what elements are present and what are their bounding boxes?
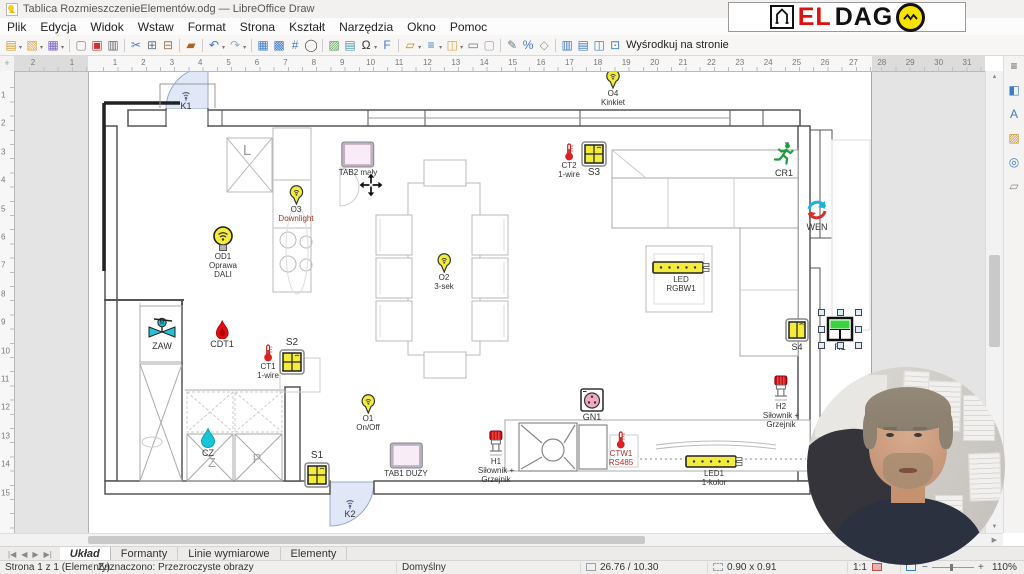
device-label: S3 (588, 167, 600, 178)
dropdown-caret-icon[interactable]: ▾ (460, 44, 463, 51)
device-ct1[interactable]: CT11-wire (257, 344, 279, 380)
zoom-level[interactable]: 110% (992, 561, 1017, 574)
device-label: S4 (791, 342, 802, 352)
ruler-number: 4 (198, 58, 202, 67)
vent-icon (804, 198, 830, 222)
ruler-number: 20 (650, 58, 659, 67)
device-label: GN1 (583, 412, 602, 422)
ruler-number: 9 (1, 318, 5, 327)
led-strip-icon (652, 260, 710, 275)
actuator-icon (486, 430, 506, 457)
device-s2[interactable]: S2 (279, 349, 305, 375)
ruler-number: 8 (1, 289, 5, 298)
person-eye (886, 433, 894, 437)
save-icon[interactable]: ▦ (45, 37, 61, 54)
new-blank-icon[interactable]: ▢ (73, 37, 89, 54)
actuator-icon (771, 375, 791, 402)
eldago-logo: ELDAG (728, 2, 966, 32)
ruler-number: 13 (1, 431, 10, 440)
print-icon[interactable]: ▥ (105, 37, 121, 54)
switch2-icon (785, 318, 809, 342)
ruler-number: 1 (113, 58, 117, 67)
display-grid-icon[interactable]: ▦ (255, 37, 271, 54)
selection-handle[interactable] (855, 309, 862, 316)
device-label: CTW1RS485 (609, 449, 633, 467)
device-h1[interactable]: H1Siłownik +Grzejnik (478, 430, 514, 484)
zoom-slider[interactable] (932, 567, 974, 568)
dropdown-caret-icon[interactable]: ▾ (222, 44, 225, 51)
menu-pomoc[interactable]: Pomoc (443, 19, 494, 35)
device-ct2[interactable]: CT21-wire (558, 143, 580, 179)
menu-okno[interactable]: Okno (400, 19, 443, 35)
ruler-number: 30 (934, 58, 943, 67)
device-label: TAB1 DUŻY (384, 469, 427, 478)
ruler-number: 8 (312, 58, 316, 67)
device-cr1[interactable]: CR1 (773, 142, 795, 178)
ruler-number: 2 (31, 58, 35, 67)
device-od1[interactable]: OD1OprawaDALI (209, 226, 237, 279)
device-move[interactable] (358, 172, 384, 198)
device-tab1[interactable]: TAB1 DUŻY (384, 442, 427, 478)
device-o2[interactable]: O23-sek (434, 253, 454, 291)
thermometer-icon (262, 344, 274, 362)
room-label-p: P (253, 451, 262, 466)
toolbar-separator (322, 39, 323, 52)
tablet-icon (341, 141, 375, 168)
undo-icon[interactable]: ↶ (206, 37, 222, 54)
device-o1[interactable]: O1On/Off (356, 394, 379, 432)
page-style[interactable]: Domyślny (402, 561, 446, 574)
toggle-extrusion-icon[interactable]: ◇ (536, 37, 552, 54)
device-label: CT21-wire (558, 161, 580, 179)
selection-handle[interactable] (818, 342, 825, 349)
running-man-icon (773, 142, 795, 168)
device-label: O3Downlight (278, 205, 313, 223)
switch4-icon (304, 462, 330, 488)
next-layer-button[interactable]: ▶ (30, 550, 40, 559)
align-objects-icon[interactable]: ≡ (423, 37, 439, 54)
device-k2[interactable]: K2 (344, 498, 356, 519)
ruler-number: 14 (480, 58, 489, 67)
logo-text-el: EL (798, 4, 832, 30)
device-zaw[interactable]: MZAW (146, 317, 178, 351)
glue-points-icon[interactable]: % (520, 37, 536, 54)
horizontal-ruler[interactable]: 2112345678910111213141516171819202122232… (14, 56, 985, 72)
toolbar-separator (179, 39, 180, 52)
device-led1[interactable]: LED11-kolor (685, 454, 743, 487)
line-and-filling-icon[interactable]: ▭ (465, 37, 481, 54)
scroll-right-icon[interactable]: ▶ (992, 536, 997, 544)
ruler-number: 4 (1, 176, 5, 185)
ruler-number: 26 (821, 58, 830, 67)
gallery-icon[interactable]: ▨ (1006, 131, 1022, 145)
scroll-up-icon[interactable]: ▲ (986, 74, 1003, 80)
scroll-down-icon[interactable]: ▼ (986, 524, 1003, 530)
device-s4[interactable]: S4 (785, 318, 809, 352)
dropdown-caret-icon[interactable]: ▾ (439, 44, 442, 51)
led-strip-icon (685, 454, 743, 469)
flame-icon (214, 320, 230, 339)
device-label: CR1 (775, 168, 793, 178)
ruler-number: 15 (1, 488, 10, 497)
device-label: LED11-kolor (702, 469, 726, 487)
move-cursor-icon (358, 172, 384, 198)
distribute-horizontally-icon[interactable]: ▥ (559, 37, 575, 54)
device-label: K1 (180, 101, 191, 111)
thermometer-icon (615, 431, 627, 449)
transformations-icon[interactable]: ▱ (402, 37, 418, 54)
door-sensor-icon (180, 90, 192, 101)
horizontal-scroll-thumb[interactable] (88, 536, 645, 544)
copy-icon[interactable]: ⊞ (144, 37, 160, 54)
toolbar-separator (251, 39, 252, 52)
cut-icon[interactable]: ✂ (128, 37, 144, 54)
device-label: ZAW (152, 341, 172, 351)
ruler-number: 7 (1, 261, 5, 270)
cursor-position: 26.76 / 10.30 (600, 561, 658, 574)
ruler-number: 9 (340, 58, 344, 67)
toolbar-separator (555, 39, 556, 52)
toolbar-separator (124, 39, 125, 52)
dropdown-caret-icon[interactable]: ▾ (40, 44, 43, 51)
object-size: 0.90 x 0.91 (727, 561, 776, 574)
first-layer-button[interactable]: |◀ (6, 550, 18, 559)
device-wen[interactable]: WEN (804, 198, 830, 232)
ruler-number: 24 (764, 58, 773, 67)
styles-icon[interactable]: A (1006, 107, 1022, 121)
logo-text-dag: DAG (835, 4, 894, 30)
device-label: S1 (311, 450, 323, 461)
eldago-logo-mark-icon (769, 4, 795, 30)
window-title: Tablica RozmieszczenieElementów.odg — Li… (23, 3, 314, 15)
device-o4[interactable]: O4Kinkiet (601, 71, 625, 107)
ruler-number: 31 (963, 58, 972, 67)
ruler-number: 10 (1, 346, 10, 355)
device-label: OD1OprawaDALI (209, 252, 237, 279)
vertical-scroll-thumb[interactable] (989, 255, 1000, 347)
ruler-number: 13 (451, 58, 460, 67)
device-cz[interactable]: CZ (201, 428, 216, 458)
ruler-number: 11 (1, 375, 9, 384)
previous-layer-button[interactable]: ◀ (19, 550, 29, 559)
ruler-number: 3 (1, 147, 5, 156)
fontwork-icon[interactable]: F (379, 37, 395, 54)
ruler-number: 16 (537, 58, 546, 67)
center-horizontally-icon[interactable]: ◫ (591, 37, 607, 54)
layer-tab-linie-wymiarowe[interactable]: Linie wymiarowe (178, 547, 280, 561)
lamp-pin-icon (437, 253, 451, 273)
redo-icon[interactable]: ↷ (227, 37, 243, 54)
ruler-number: 1 (70, 58, 74, 67)
select-icon[interactable]: ▢ (481, 37, 497, 54)
socket-icon (580, 388, 604, 412)
device-label: K2 (344, 509, 355, 519)
device-led_rgbw1[interactable]: LEDRGBW1 (652, 260, 710, 293)
thermometer-icon (563, 143, 575, 161)
standard-toolbar: ▤▾▧▾▦▾▢▣▥✂⊞⊟▰↶▾↷▾▦▩#◯▨▤Ω▾F▱▾≡▾◫▾▭▢✎%◇▥▤◫… (0, 35, 1024, 56)
ruler-number: 1 (1, 91, 5, 100)
dropdown-caret-icon[interactable]: ▾ (243, 44, 246, 51)
device-label: O4Kinkiet (601, 89, 625, 107)
relay-icon (826, 316, 854, 342)
ruler-number: 3 (170, 58, 174, 67)
menu-format[interactable]: Format (181, 19, 233, 35)
lamp-pin-icon (289, 185, 303, 205)
menu-edycja[interactable]: Edycja (33, 19, 83, 35)
device-label: CZ (202, 448, 214, 458)
dropdown-caret-icon[interactable]: ▾ (374, 44, 377, 51)
device-label: O23-sek (434, 273, 454, 291)
device-label: S2 (286, 337, 298, 348)
helplines-icon[interactable]: # (287, 37, 303, 54)
selection-handle[interactable] (837, 309, 844, 316)
device-h2[interactable]: H2Siłownik +Grzejnik (763, 375, 799, 429)
menu-plik[interactable]: Plik (0, 19, 33, 35)
device-cdt1[interactable]: CDT1 (210, 320, 234, 349)
bulb-icon (212, 226, 234, 252)
menu-kształt[interactable]: Kształt (282, 19, 332, 35)
selection-handle[interactable] (855, 342, 862, 349)
paste-icon[interactable]: ⊟ (160, 37, 176, 54)
ruler-number: 22 (707, 58, 716, 67)
ruler-number: 5 (226, 58, 230, 67)
distribute-vertically-icon[interactable]: ▤ (575, 37, 591, 54)
tablet-icon (389, 442, 423, 469)
device-ctw1[interactable]: CTW1RS485 (609, 431, 633, 467)
arrange-icon[interactable]: ◫ (444, 37, 460, 54)
logo-o-resistor-icon (896, 3, 925, 32)
switch4-icon (279, 349, 305, 375)
toolbar-separator (202, 39, 203, 52)
selection-handle[interactable] (855, 326, 862, 333)
zoom-slider-thumb[interactable] (950, 564, 953, 571)
device-r1[interactable]: R1 (826, 316, 854, 352)
room-label-l: L (243, 142, 251, 159)
lamp-pin-icon (361, 394, 375, 414)
properties-icon[interactable]: ◧ (1006, 83, 1022, 97)
open-file-icon[interactable]: ▧ (24, 37, 40, 54)
last-layer-button[interactable]: ▶| (42, 550, 54, 559)
selection-handle[interactable] (818, 326, 825, 333)
ruler-number: 15 (508, 58, 517, 67)
device-label: CDT1 (210, 339, 234, 349)
ruler-number: 11 (395, 58, 403, 67)
ruler-number: 6 (1, 233, 5, 242)
webcam-overlay (807, 367, 1005, 565)
new-document-icon[interactable]: ▤ (3, 37, 19, 54)
layer-tab-formanty[interactable]: Formanty (111, 547, 178, 561)
sidebar-icon-strip: ≡◧A▨◎▱ (1003, 56, 1024, 533)
layer-tab-elementy[interactable]: Elementy (281, 547, 348, 561)
menu-wstaw[interactable]: Wstaw (131, 19, 181, 35)
device-k1[interactable]: K1 (180, 90, 192, 111)
switch4-icon (581, 141, 607, 167)
ruler-number: 2 (141, 58, 145, 67)
ruler-number: 2 (1, 119, 5, 128)
device-label: H2Siłownik +Grzejnik (763, 402, 799, 429)
device-label: H1Siłownik +Grzejnik (478, 457, 514, 484)
app-icon (6, 3, 18, 16)
drop-icon (201, 428, 216, 448)
toolbar-separator (69, 39, 70, 52)
ruler-number: 14 (1, 460, 10, 469)
export-pdf-icon[interactable]: ▣ (89, 37, 105, 54)
insert-chart-icon[interactable]: ▤ (342, 37, 358, 54)
ruler-number: 12 (1, 403, 10, 412)
vertical-ruler[interactable]: 123456789101112131415 (0, 71, 15, 533)
ruler-number: 21 (679, 58, 688, 67)
menu-widok[interactable]: Widok (83, 19, 130, 35)
ruler-origin-corner[interactable]: + (0, 56, 15, 72)
door-sensor-icon (344, 498, 356, 509)
ruler-number: 7 (283, 58, 287, 67)
shapes-icon[interactable]: ▱ (1006, 179, 1022, 193)
edit-points-icon[interactable]: ✎ (504, 37, 520, 54)
ruler-number: 29 (906, 58, 915, 67)
special-character-icon[interactable]: Ω (358, 37, 374, 54)
page-status: Strona 1 z 1 (Elementy) (5, 561, 110, 574)
device-label: O1On/Off (356, 414, 379, 432)
person-eye (914, 433, 922, 437)
ruler-number: 25 (792, 58, 801, 67)
object-size-icon (713, 563, 723, 571)
ruler-number: 17 (565, 58, 574, 67)
dropdown-caret-icon[interactable]: ▾ (19, 44, 22, 51)
ruler-number: 18 (593, 58, 602, 67)
center-on-page-icon[interactable]: ⊡ (607, 37, 623, 54)
svg-text:M: M (160, 321, 165, 327)
toolbar-separator (500, 39, 501, 52)
ruler-number: 5 (1, 204, 5, 213)
selection-handle[interactable] (818, 309, 825, 316)
device-label: CT11-wire (257, 362, 279, 380)
clone-formatting-icon[interactable]: ▰ (183, 37, 199, 54)
ruler-number: 12 (423, 58, 432, 67)
device-gn1[interactable]: GN1 (580, 388, 604, 422)
toolbar-separator (398, 39, 399, 52)
ruler-number: 19 (622, 58, 631, 67)
device-label: WEN (807, 222, 828, 232)
menu-strona[interactable]: Strona (233, 19, 282, 35)
insert-image-icon[interactable]: ▨ (326, 37, 342, 54)
sidebar-settings-icon[interactable]: ≡ (1006, 59, 1022, 73)
device-label: LEDRGBW1 (666, 275, 695, 293)
zoom-icon[interactable]: ◯ (303, 37, 319, 54)
device-s1[interactable]: S1 (304, 462, 330, 488)
layer-tab-układ[interactable]: Układ (60, 547, 111, 561)
dropdown-caret-icon[interactable]: ▾ (61, 44, 64, 51)
device-o3[interactable]: O3Downlight (278, 185, 313, 223)
ruler-number: 28 (877, 58, 886, 67)
menu-narzędzia[interactable]: Narzędzia (332, 19, 400, 35)
selection-status: Zaznaczono: Przezroczyste obrazy (98, 561, 254, 574)
device-s3[interactable]: S3 (581, 141, 607, 178)
valve-icon: M (146, 317, 178, 341)
cursor-position-icon (586, 563, 596, 571)
dropdown-caret-icon[interactable]: ▾ (418, 44, 421, 51)
navigator-icon[interactable]: ◎ (1006, 155, 1022, 169)
ruler-number: 6 (255, 58, 259, 67)
snap-guides-icon[interactable]: ▩ (271, 37, 287, 54)
selection-handle[interactable] (837, 342, 844, 349)
ruler-number: 23 (735, 58, 744, 67)
lamp-pin-icon (606, 71, 620, 89)
ruler-number: 27 (849, 58, 858, 67)
toolbar-center-on-page-label[interactable]: Wyśrodkuj na stronie (626, 39, 729, 51)
ruler-number: 10 (366, 58, 375, 67)
